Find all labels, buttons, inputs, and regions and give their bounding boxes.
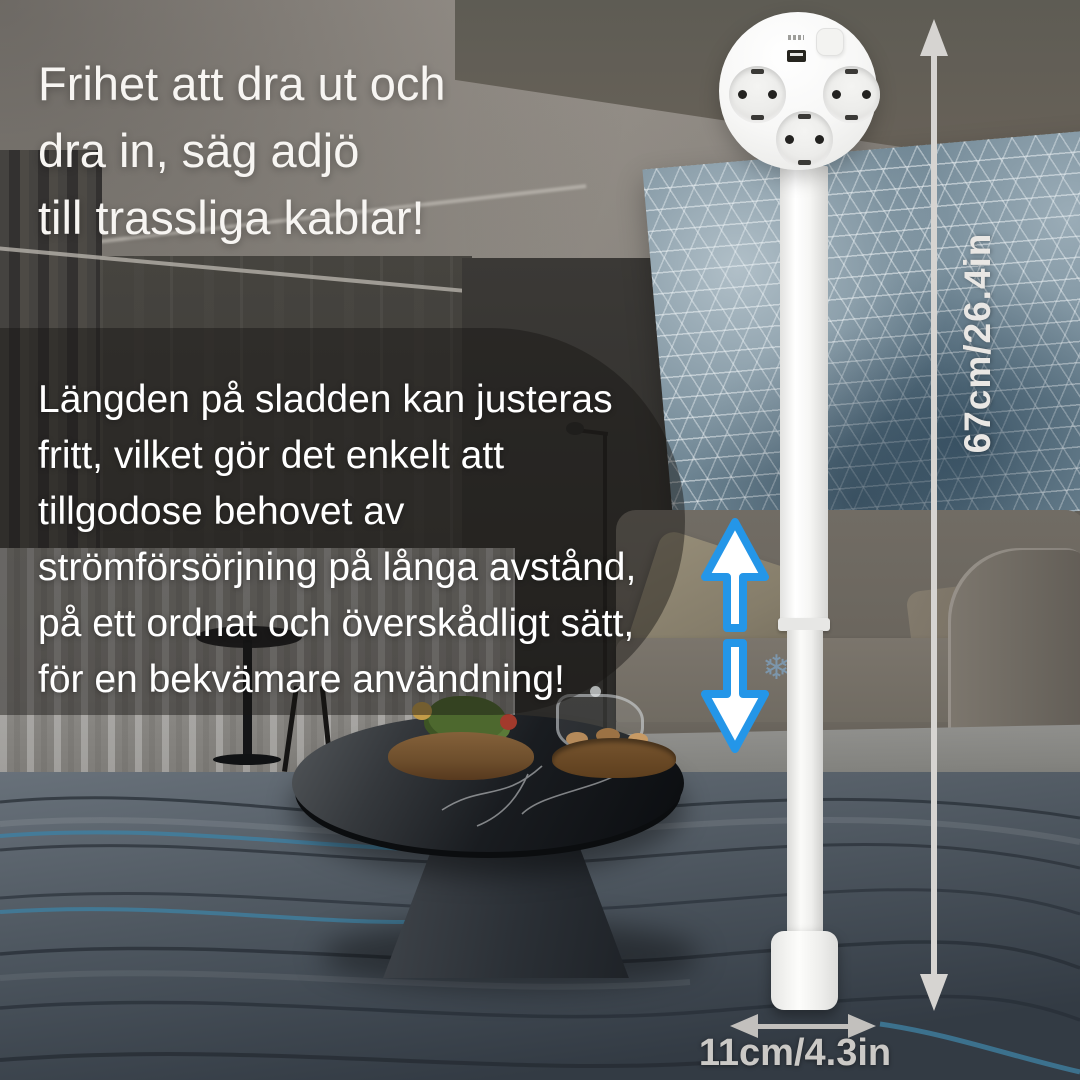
height-dimension-label: 67cm/26.4in (957, 193, 999, 493)
fruit-bowl (388, 732, 534, 780)
ground-clip (751, 115, 764, 120)
ground-clip (798, 160, 811, 165)
power-socket (776, 111, 833, 168)
plug-end (771, 931, 838, 1010)
telescopic-pole-lower (787, 630, 823, 935)
power-socket (823, 66, 880, 123)
height-measure-arrow-icon (904, 14, 964, 1016)
side-table-base (213, 754, 281, 765)
product-banner: ❄ Frihet att dra ut och dra in, säg adjö… (0, 0, 1080, 1080)
socket-hole (768, 90, 777, 99)
snack-bowl (552, 738, 676, 778)
socket-hole (832, 90, 841, 99)
socket-hole (862, 90, 871, 99)
power-strip-head (719, 12, 877, 170)
reset-button (816, 28, 844, 56)
ground-clip (798, 114, 811, 119)
power-socket (729, 66, 786, 123)
usb-rating-label (788, 35, 804, 40)
up-arrow-icon (705, 522, 765, 628)
usb-tongue (790, 53, 803, 56)
telescopic-pole-upper (780, 166, 828, 628)
socket-hole (785, 135, 794, 144)
body-text: Längden på sladden kan justeras fritt, v… (38, 372, 658, 708)
adjust-up-down-arrows-icon (698, 512, 774, 758)
down-arrow-icon (705, 643, 765, 749)
usb-port-icon (787, 50, 806, 62)
socket-hole (738, 90, 747, 99)
headline: Frihet att dra ut och dra in, säg adjö t… (38, 50, 658, 251)
ground-clip (751, 69, 764, 74)
ground-clip (845, 69, 858, 74)
wall-art (642, 128, 1080, 546)
socket-hole (815, 135, 824, 144)
ground-clip (845, 115, 858, 120)
fruit (500, 714, 517, 730)
width-dimension-label: 11cm/4.3in (695, 1032, 895, 1075)
